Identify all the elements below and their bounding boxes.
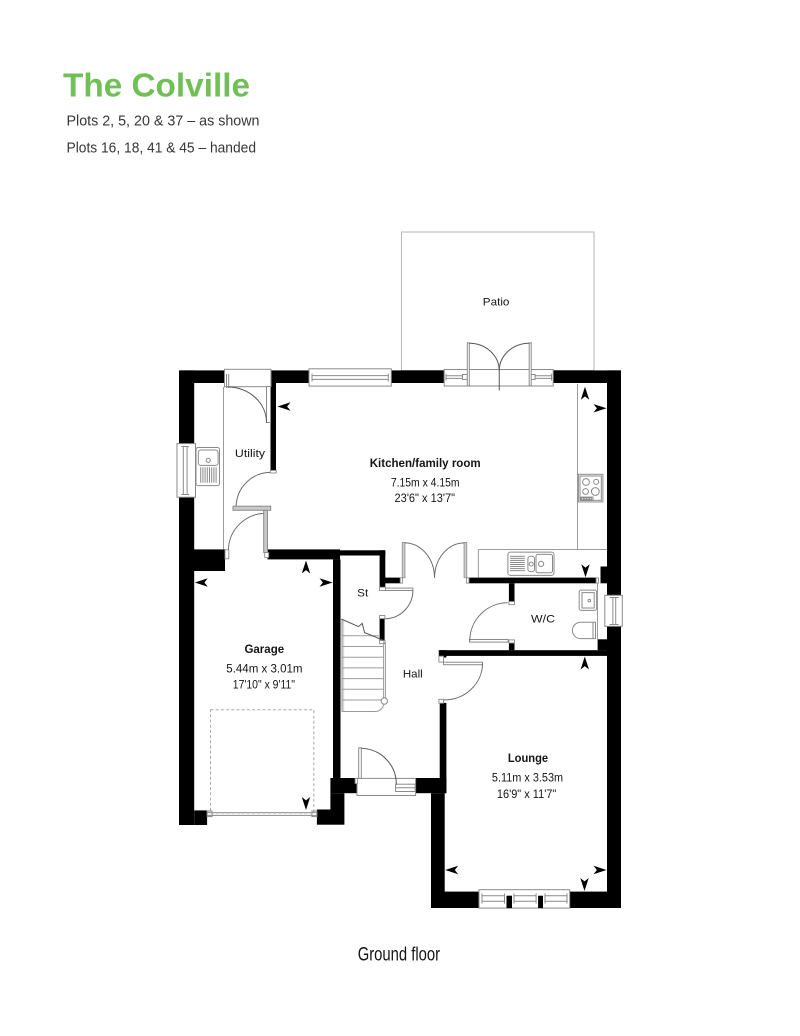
svg-text:Garage: Garage [244, 642, 284, 656]
svg-text:W/C: W/C [531, 614, 555, 626]
svg-text:23'6" x 13'7": 23'6" x 13'7" [395, 493, 456, 505]
svg-text:17'10" x 9'11": 17'10" x 9'11" [233, 680, 295, 692]
svg-text:Hall: Hall [403, 669, 423, 681]
svg-text:16'9" x 11'7": 16'9" x 11'7" [497, 789, 556, 801]
svg-text:St: St [357, 588, 369, 600]
svg-text:The Colville: The Colville [63, 66, 250, 103]
svg-text:Plots 2, 5, 20 & 37 – as shown: Plots 2, 5, 20 & 37 – as shown [67, 113, 260, 130]
svg-text:Plots 16, 18, 41 & 45 – handed: Plots 16, 18, 41 & 45 – handed [67, 140, 257, 157]
svg-text:Patio: Patio [483, 297, 510, 309]
svg-text:5.44m x 3.01m: 5.44m x 3.01m [226, 663, 302, 675]
svg-text:7.15m x 4.15m: 7.15m x 4.15m [391, 478, 460, 490]
svg-text:5.11m x 3.53m: 5.11m x 3.53m [492, 772, 563, 784]
svg-text:Utility: Utility [235, 448, 265, 460]
svg-text:Ground floor: Ground floor [358, 944, 441, 966]
svg-text:Kitchen/family room: Kitchen/family room [370, 456, 481, 470]
svg-text:Lounge: Lounge [508, 751, 549, 765]
